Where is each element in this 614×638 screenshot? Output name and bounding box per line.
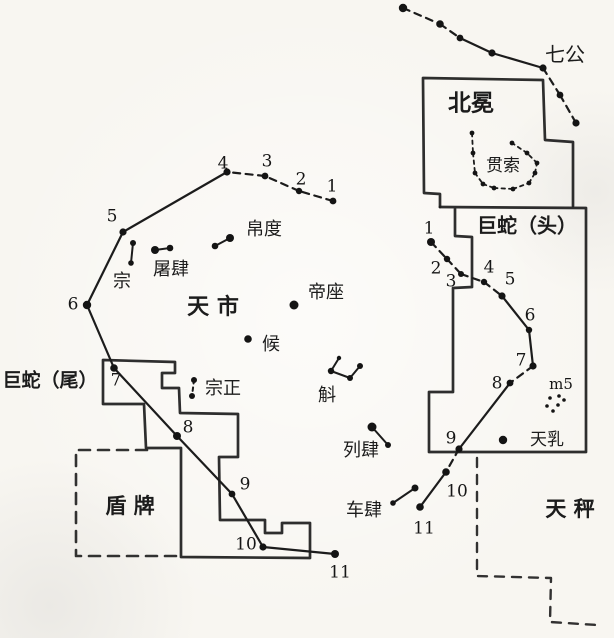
star-guansuo-circlet-6 (511, 187, 516, 192)
star-guansuo-circlet-1 (470, 131, 475, 136)
star-chesi-pair-1 (390, 500, 396, 506)
chain-line-guansuo-circlet (473, 153, 475, 173)
chain-line-seven-dukes (560, 95, 576, 123)
star-left-snake-body-6 (83, 301, 91, 309)
star-left-snake-body-1 (330, 198, 337, 205)
label-hu: 斛 (318, 385, 336, 406)
chain-number-right-snake-head-6: 6 (525, 306, 536, 326)
chain-line-left-snake-body (87, 305, 114, 368)
star-m5-cluster-2 (557, 394, 561, 398)
label-guansuo: 贯索 (486, 156, 520, 176)
asterism-line-chesi-pair (393, 488, 415, 503)
star-tusi-pair-1 (151, 246, 159, 254)
star-m5-cluster-6 (551, 409, 555, 413)
label-tusi: 屠肆 (153, 259, 189, 280)
chain-number-left-snake-body-8: 8 (183, 418, 194, 438)
label-beimian: 北冕 (448, 91, 494, 117)
star-guansuo-circlet-5 (492, 186, 497, 191)
star-hu-zigzag-4 (357, 363, 363, 369)
star-hu-zigzag-2 (328, 368, 334, 374)
star-m5-cluster-1 (548, 396, 552, 400)
label-tianru: 天乳 (530, 430, 564, 450)
chain-number-right-snake-head-3: 3 (446, 272, 457, 292)
chain-number-left-snake-body-7: 7 (111, 371, 122, 391)
star-left-snake-body-8 (173, 432, 181, 440)
star-guansuo-circlet-2 (471, 151, 476, 156)
label-m5: m5 (549, 375, 573, 393)
chain-number-left-snake-body-10: 10 (235, 535, 257, 555)
chain-number-right-snake-head-4: 4 (484, 258, 495, 278)
border-libra-border (477, 458, 597, 625)
star-seven-dukes-2 (436, 20, 444, 28)
star-liesi-pair-2 (385, 442, 391, 448)
label-jushe-tou: 巨蛇（头） (477, 214, 577, 238)
chain-number-left-snake-body-2: 2 (296, 170, 307, 190)
label-chesi: 车肆 (346, 500, 382, 521)
chain-number-right-snake-head-9: 9 (446, 429, 457, 449)
chain-number-right-snake-head-7: 7 (516, 351, 527, 371)
chain-line-guansuo-circlet (472, 133, 473, 153)
star-chesi-pair-2 (412, 485, 419, 492)
chain-line-left-snake-body (227, 172, 265, 176)
chain-number-left-snake-body-3: 3 (262, 152, 273, 172)
label-jushe-wei: 巨蛇（尾） (2, 369, 97, 392)
chain-number-left-snake-body-1: 1 (327, 177, 338, 197)
label-zong: 宗 (113, 271, 131, 292)
star-map-canvas: 12345678910111234567891011七公北冕贯索巨蛇（头）帛度屠… (0, 0, 614, 638)
star-right-snake-head-4 (481, 279, 487, 285)
chain-number-left-snake-body-6: 6 (68, 295, 79, 315)
chain-line-seven-dukes (543, 68, 560, 95)
star-zongzheng-pair-2 (189, 393, 195, 399)
star-m5-cluster-5 (556, 403, 560, 407)
label-qigong: 七公 (545, 43, 585, 67)
star-guansuo-circlet-9 (535, 161, 540, 166)
chain-line-left-snake-body (87, 232, 123, 305)
star-left-snake-body-3 (262, 173, 269, 180)
star-right-snake-head-2 (444, 256, 450, 262)
star-right-snake-head-6 (526, 327, 532, 333)
star-hu-zigzag-3 (347, 375, 353, 381)
star-left-snake-body-10 (259, 543, 266, 550)
star-tianru-star-1 (499, 436, 507, 444)
star-zong-pair-1 (130, 240, 136, 246)
wall-serpens-head-box (429, 207, 586, 452)
asterism-line-zong-pair (131, 243, 133, 263)
chain-line-seven-dukes (403, 8, 440, 24)
star-guansuo-circlet-4 (481, 182, 486, 187)
chain-number-right-snake-head-2: 2 (431, 259, 442, 279)
star-left-snake-body-11 (331, 550, 339, 558)
chain-line-right-snake-head (420, 472, 446, 507)
star-seven-dukes-7 (572, 119, 579, 126)
star-right-snake-head-9 (455, 445, 462, 452)
star-right-snake-head-7 (529, 362, 536, 369)
label-hou: 候 (262, 334, 280, 355)
label-tianshi: 天 市 (187, 294, 239, 320)
chain-number-right-snake-head-8: 8 (492, 374, 503, 394)
star-hu-zigzag-1 (337, 356, 341, 360)
star-bodu-pair-2 (226, 234, 234, 242)
label-dizuo: 帝座 (308, 282, 344, 303)
star-zong-pair-2 (128, 260, 134, 266)
star-seven-dukes-6 (557, 92, 564, 99)
label-zongzheng: 宗正 (205, 378, 241, 399)
star-seven-dukes-1 (399, 4, 407, 12)
chain-line-seven-dukes (492, 53, 543, 68)
star-right-snake-head-11 (416, 503, 424, 511)
label-bodu: 帛度 (246, 219, 282, 240)
star-seven-dukes-3 (457, 35, 464, 42)
chain-number-left-snake-body-4: 4 (218, 154, 229, 174)
star-right-snake-head-8 (507, 380, 514, 387)
chain-line-left-snake-body (265, 176, 299, 191)
star-right-snake-head-5 (498, 292, 505, 299)
label-tiancheng: 天 秤 (545, 497, 594, 521)
star-left-snake-body-9 (229, 491, 236, 498)
star-right-snake-head-1 (427, 238, 435, 246)
chain-line-left-snake-body (263, 547, 335, 554)
star-guansuo-circlet-7 (527, 181, 532, 186)
chain-number-right-snake-head-5: 5 (505, 270, 516, 290)
star-zongzheng-pair-1 (191, 377, 197, 383)
star-tusi-pair-2 (167, 245, 174, 252)
star-right-snake-head-10 (442, 468, 450, 476)
chain-line-guansuo-circlet (513, 183, 529, 189)
star-map-page: 12345678910111234567891011七公北冕贯索巨蛇（头）帛度屠… (0, 0, 614, 638)
star-seven-dukes-4 (488, 49, 495, 56)
label-liesi: 列肆 (343, 440, 379, 461)
chain-number-left-snake-body-9: 9 (240, 475, 251, 495)
chain-number-left-snake-body-11: 11 (329, 563, 351, 583)
chain-number-right-snake-head-10: 10 (446, 482, 468, 502)
chain-number-right-snake-head-1: 1 (424, 219, 435, 239)
label-dunpai: 盾 牌 (105, 494, 154, 518)
star-left-snake-body-5 (119, 228, 126, 235)
star-right-snake-head-3 (458, 271, 464, 277)
star-m5-cluster-4 (545, 404, 549, 408)
star-guansuo-circlet-11 (510, 141, 515, 146)
chain-number-right-snake-head-11: 11 (413, 519, 435, 539)
star-hou-star-1 (244, 335, 252, 343)
asterism-line-hu-zigzag (331, 358, 360, 378)
star-guansuo-circlet-3 (473, 171, 478, 176)
chain-line-guansuo-circlet (512, 143, 527, 153)
star-m5-cluster-3 (562, 398, 566, 402)
chain-line-guansuo-circlet (494, 188, 513, 189)
chain-line-left-snake-body (123, 172, 227, 232)
star-guansuo-circlet-10 (525, 151, 530, 156)
chain-line-seven-dukes (460, 38, 492, 53)
star-guansuo-circlet-8 (533, 171, 538, 176)
star-dizuo-star-1 (290, 301, 299, 310)
chain-number-left-snake-body-5: 5 (107, 207, 118, 227)
star-bodu-pair-1 (212, 243, 219, 250)
chain-line-left-snake-body (177, 436, 232, 494)
star-liesi-pair-1 (368, 423, 377, 432)
chain-line-right-snake-head (529, 330, 533, 366)
